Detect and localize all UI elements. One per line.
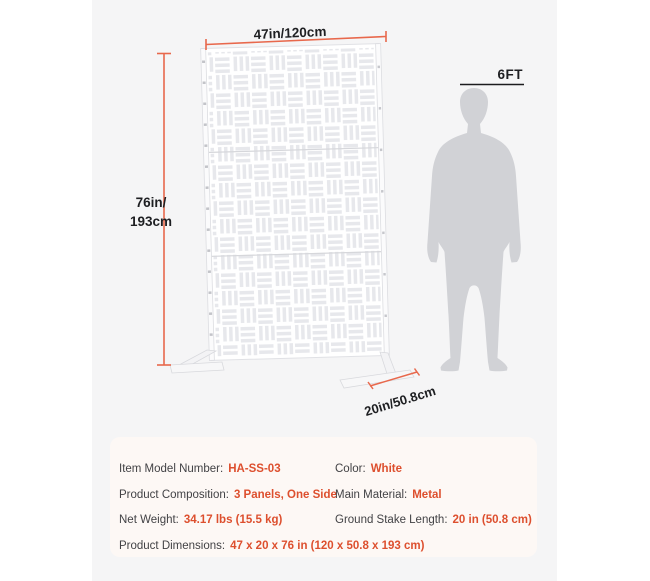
spec-item-model-number: Item Model Number:HA-SS-03 [119, 462, 335, 481]
panel-cutout-pattern [208, 48, 382, 357]
spec-value: 47 x 20 x 76 in (120 x 50.8 x 193 cm) [230, 540, 424, 552]
spec-value: HA-SS-03 [228, 463, 280, 475]
spec-label: Main Material: [335, 489, 407, 501]
spec-color: Color:White [335, 462, 532, 481]
spec-product-composition: Product Composition:3 Panels, One Side [119, 488, 335, 507]
spec-main-material: Main Material:Metal [335, 488, 532, 507]
privacy-screen-panel [201, 44, 390, 361]
left-foot-pad [170, 362, 224, 373]
height-dimension-label: 76in/ 193cm [130, 193, 172, 231]
right-foot-pad [340, 370, 414, 388]
spec-label: Ground Stake Length: [335, 514, 448, 526]
spec-label: Product Dimensions: [119, 540, 225, 552]
spec-value: White [371, 463, 402, 475]
spec-net-weight: Net Weight:34.17 lbs (15.5 kg) [119, 513, 335, 532]
spec-value: 3 Panels, One Side [234, 489, 337, 501]
person-silhouette [427, 88, 521, 371]
spec-value: Metal [412, 489, 441, 501]
person-height-label: 6FT [460, 67, 523, 82]
product-dimension-infographic: 47in/120cm 76in/ 193cm 6FT 20in/50.8cm I… [92, 0, 557, 581]
spec-product-dimensions: Product Dimensions:47 x 20 x 76 in (120 … [119, 539, 532, 558]
spec-ground-stake-length: Ground Stake Length:20 in (50.8 cm) [335, 513, 532, 532]
spec-label: Item Model Number: [119, 463, 223, 475]
spec-value: 20 in (50.8 cm) [453, 514, 532, 526]
spec-value: 34.17 lbs (15.5 kg) [184, 514, 282, 526]
spec-label: Net Weight: [119, 514, 179, 526]
spec-label: Color: [335, 463, 366, 475]
width-dimension-label: 47in/120cm [253, 24, 326, 42]
spec-card: Item Model Number:HA-SS-03 Color:White P… [110, 437, 537, 557]
spec-label: Product Composition: [119, 489, 229, 501]
